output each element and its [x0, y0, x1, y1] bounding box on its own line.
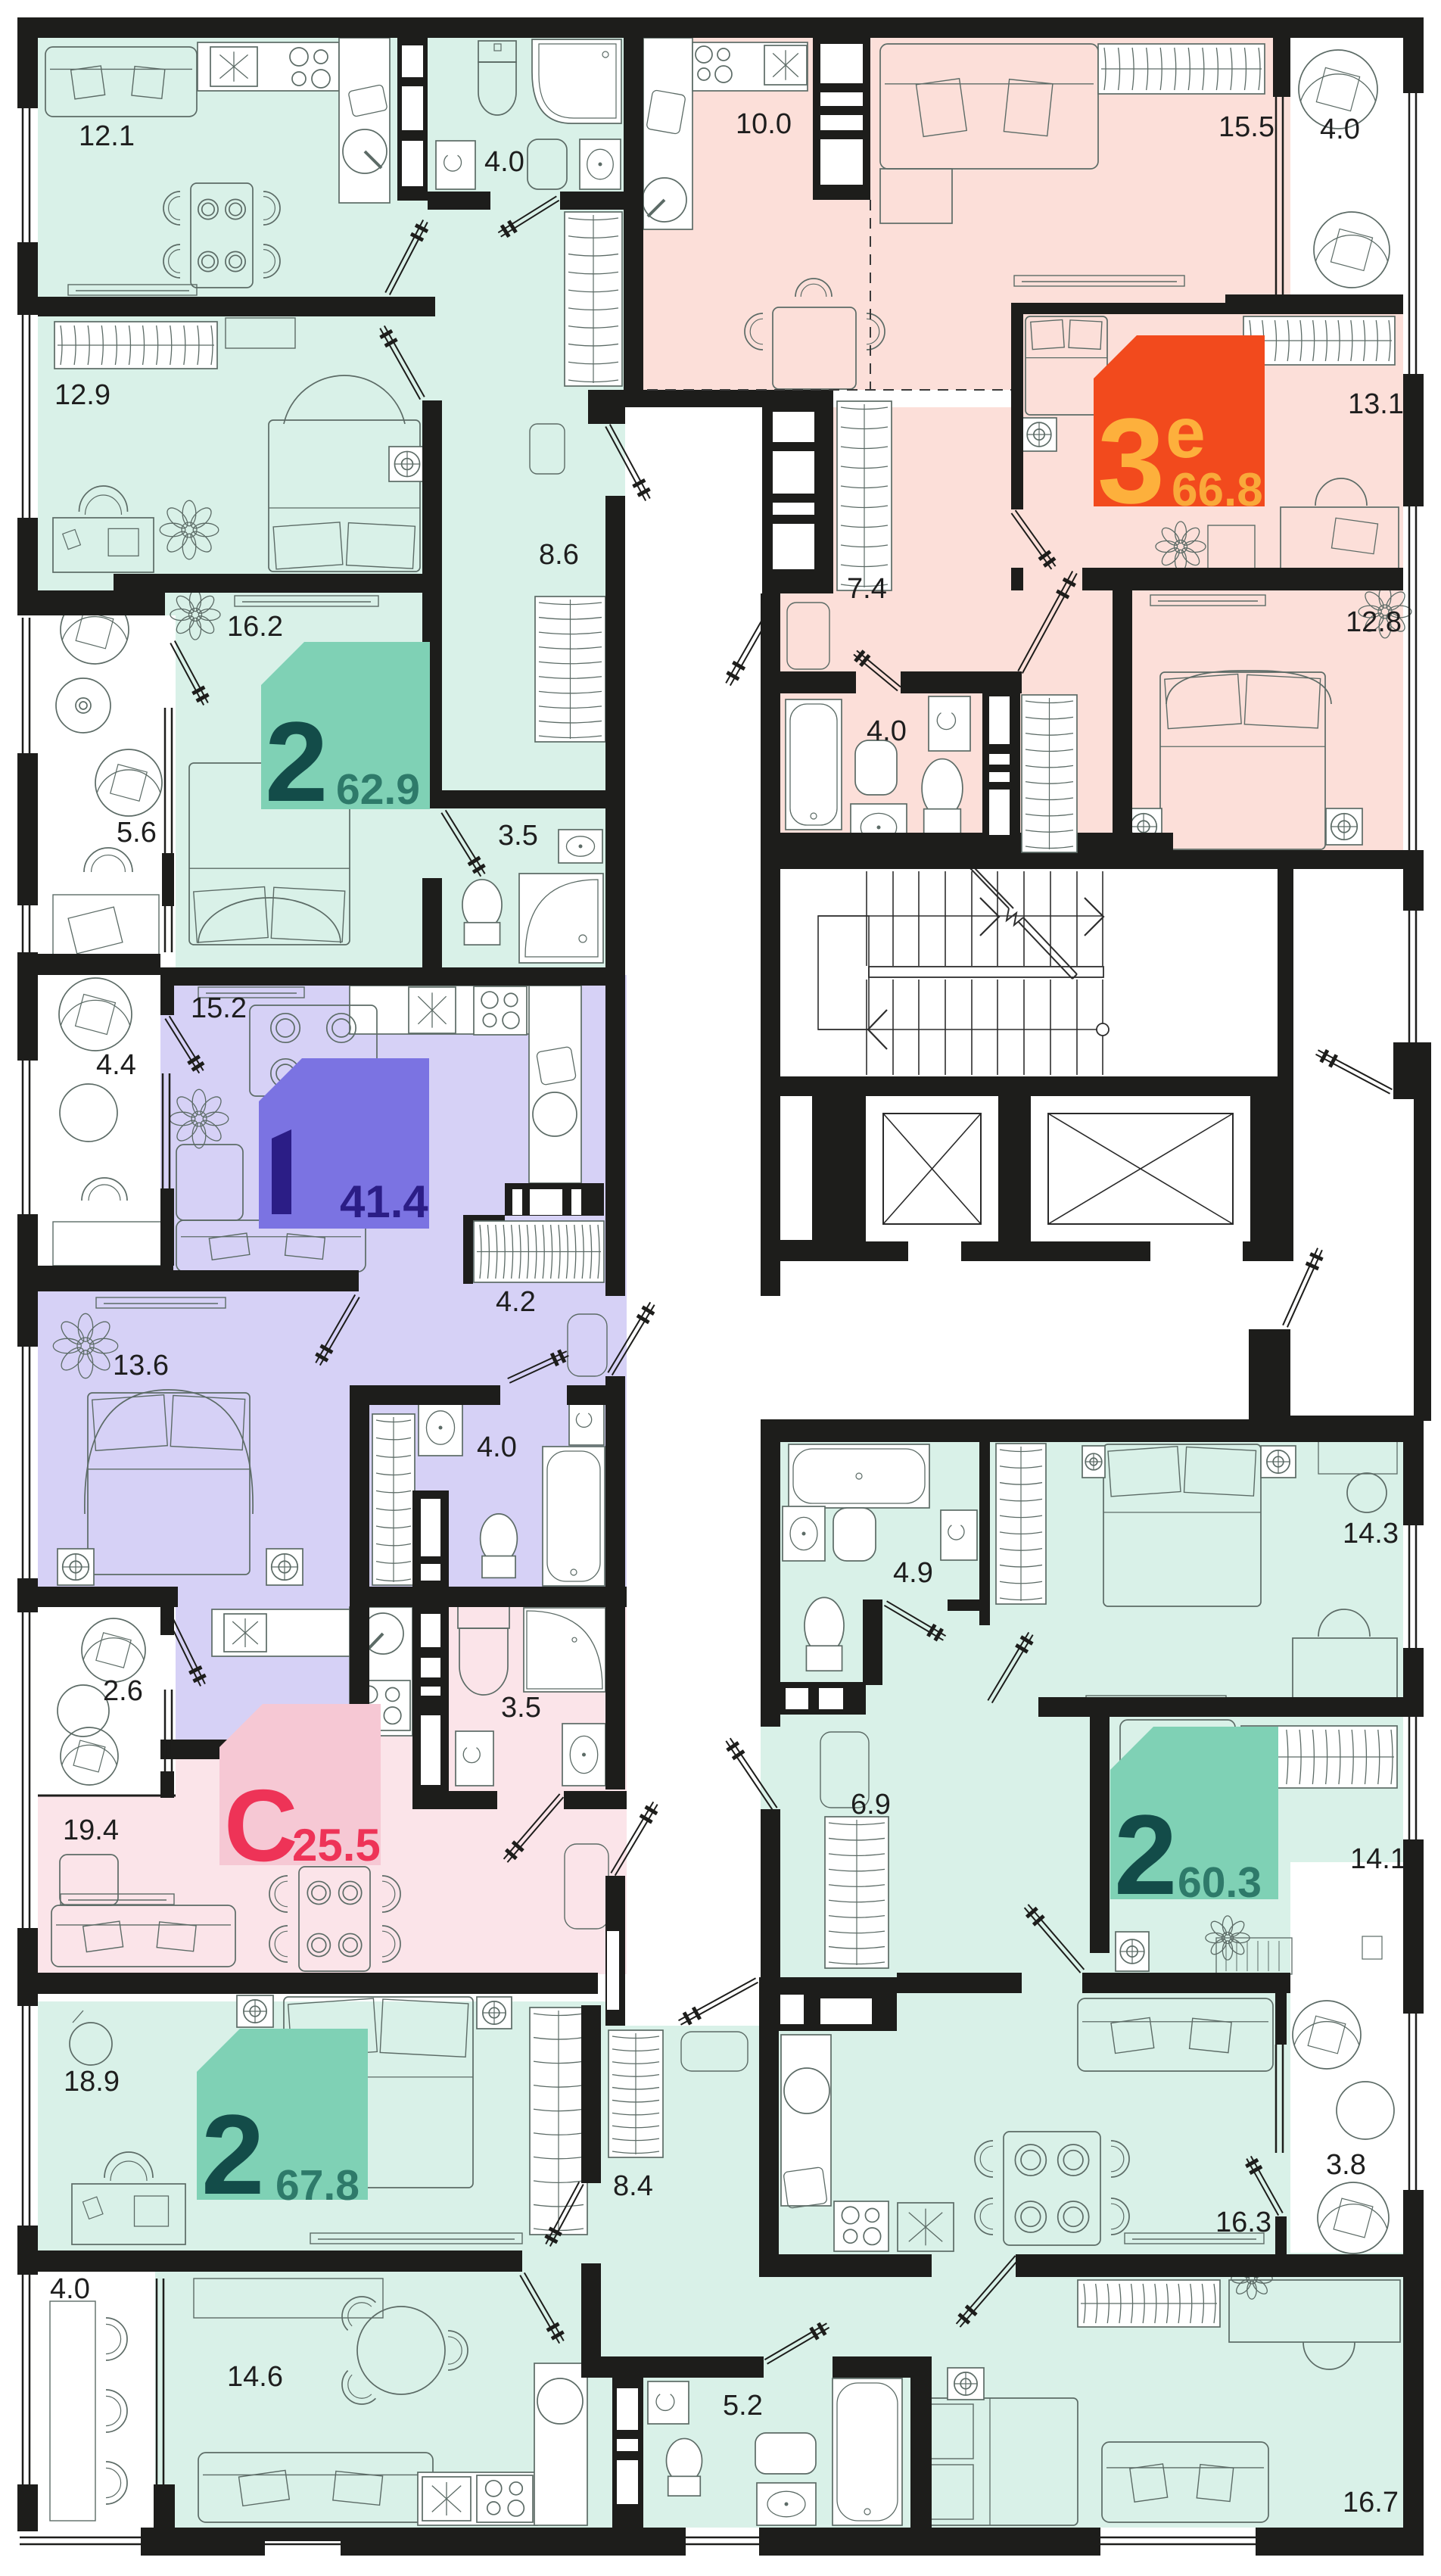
svg-text:67.8: 67.8 [275, 2161, 359, 2210]
svg-text:3.5: 3.5 [501, 1692, 541, 1724]
svg-text:5.6: 5.6 [117, 817, 157, 849]
svg-text:6.9: 6.9 [851, 1789, 891, 1821]
svg-text:5.2: 5.2 [723, 2390, 763, 2422]
svg-text:3.5: 3.5 [498, 820, 538, 852]
svg-text:е: е [1166, 393, 1206, 473]
svg-text:15.5: 15.5 [1218, 111, 1274, 143]
svg-text:8.6: 8.6 [539, 539, 579, 571]
svg-text:2: 2 [1114, 1791, 1177, 1918]
svg-text:4.0: 4.0 [50, 2273, 90, 2305]
svg-text:4.0: 4.0 [484, 146, 524, 178]
svg-text:2.6: 2.6 [103, 1675, 143, 1707]
svg-text:16.3: 16.3 [1215, 2207, 1271, 2238]
svg-text:66.8: 66.8 [1172, 464, 1263, 516]
svg-text:12.1: 12.1 [79, 120, 135, 152]
svg-text:13.1: 13.1 [1348, 388, 1404, 420]
svg-text:4.0: 4.0 [1320, 114, 1360, 145]
svg-text:41.4: 41.4 [340, 1176, 428, 1227]
svg-text:60.3: 60.3 [1178, 1858, 1262, 1907]
svg-text:14.1: 14.1 [1350, 1843, 1406, 1875]
svg-text:15.2: 15.2 [191, 992, 247, 1024]
svg-text:4.9: 4.9 [893, 1557, 933, 1589]
svg-text:14.3: 14.3 [1343, 1518, 1399, 1550]
svg-text:62.9: 62.9 [336, 765, 420, 814]
svg-text:18.9: 18.9 [64, 2066, 120, 2098]
svg-text:16.7: 16.7 [1343, 2487, 1399, 2518]
svg-text:3.8: 3.8 [1326, 2149, 1366, 2181]
svg-text:19.4: 19.4 [63, 1814, 119, 1846]
svg-text:4.2: 4.2 [496, 1286, 536, 1318]
svg-text:4.0: 4.0 [477, 1431, 517, 1463]
svg-text:12.9: 12.9 [54, 379, 110, 411]
svg-text:10.0: 10.0 [736, 108, 792, 140]
svg-text:С: С [224, 1768, 298, 1883]
svg-text:12.8: 12.8 [1346, 606, 1402, 638]
svg-text:4.0: 4.0 [867, 715, 907, 747]
svg-text:7.4: 7.4 [847, 573, 887, 605]
svg-text:3: 3 [1097, 393, 1165, 528]
svg-text:13.6: 13.6 [113, 1350, 169, 1381]
svg-text:2: 2 [201, 2091, 264, 2218]
svg-text:16.2: 16.2 [227, 611, 283, 643]
svg-text:25.5: 25.5 [292, 1820, 381, 1870]
svg-text:8.4: 8.4 [613, 2170, 653, 2202]
svg-text:14.6: 14.6 [227, 2361, 283, 2393]
svg-text:2: 2 [265, 698, 328, 825]
svg-text:4.4: 4.4 [96, 1049, 136, 1081]
